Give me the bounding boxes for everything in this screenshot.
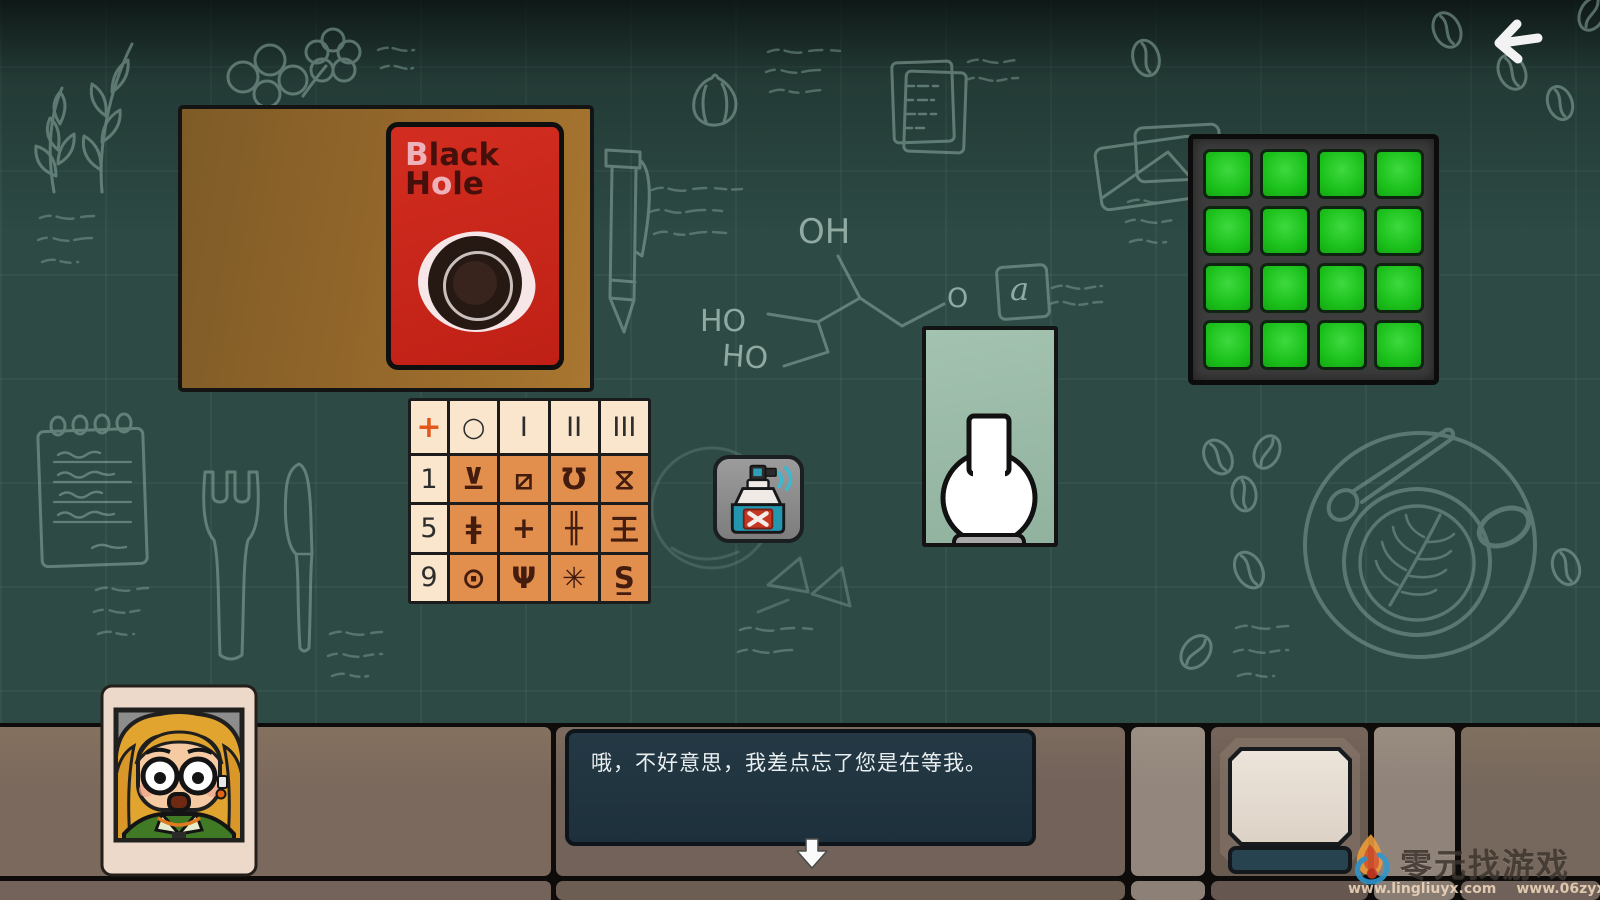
dialogue-box[interactable]: 哦，不好意思，我差点忘了您是在等我。 — [565, 729, 1036, 846]
green-grid-cell[interactable] — [1203, 320, 1253, 370]
green-grid-cell[interactable] — [1317, 263, 1367, 313]
green-grid-cell[interactable] — [1317, 149, 1367, 199]
symbol-cell[interactable]: ⧖ — [601, 456, 648, 502]
symbol-table-corner: + — [411, 401, 447, 453]
symbol-cell[interactable]: + — [500, 505, 547, 551]
down-arrow-icon — [797, 839, 827, 868]
green-grid-cell[interactable] — [1317, 320, 1367, 370]
watermark: 零元找游戏 www.lingliuyx.com www.06zyx.com — [1340, 824, 1598, 900]
green-grid-cell[interactable] — [1203, 206, 1253, 256]
symbol-cell[interactable]: ⧄ — [500, 456, 547, 502]
symbol-cell[interactable]: 王 — [601, 505, 648, 551]
black-hole-card-title: BlackHole — [405, 141, 499, 200]
watermark-logo-icon — [1346, 832, 1398, 888]
black-hole-core — [453, 261, 497, 305]
symbol-cell[interactable]: ⊙ — [450, 555, 497, 601]
vase-icon — [926, 330, 1054, 543]
green-grid-cell[interactable] — [1374, 206, 1424, 256]
symbol-cell[interactable]: ✳ — [551, 555, 598, 601]
symbol-cell[interactable]: S̲ — [601, 555, 648, 601]
back-arrow-icon — [1499, 24, 1538, 59]
portrait-inner — [116, 710, 242, 840]
spray-bottle-icon — [717, 459, 800, 539]
symbol-table-row-label: 9 — [411, 555, 447, 601]
character-portrait — [100, 684, 258, 877]
green-grid-cell[interactable] — [1260, 149, 1310, 199]
watermark-url-right: www.06zyx.com — [1516, 881, 1600, 897]
black-hole-card[interactable]: BlackHole — [386, 122, 564, 370]
inventory-card-face — [1232, 751, 1348, 842]
symbol-table-header: ○ — [450, 401, 497, 453]
bottom-panel — [1131, 727, 1205, 876]
green-grid-cell[interactable] — [1374, 149, 1424, 199]
green-grid-cell[interactable] — [1374, 263, 1424, 313]
spray-bottle-item[interactable] — [713, 455, 804, 543]
green-grid-cell[interactable] — [1260, 206, 1310, 256]
vase-display[interactable] — [922, 326, 1058, 547]
symbol-table-header: III — [601, 401, 648, 453]
bottom-strip — [0, 881, 551, 900]
symbol-cell[interactable]: Ψ — [500, 555, 547, 601]
symbol-table-header: II — [551, 401, 598, 453]
dialogue-continue-button[interactable] — [795, 838, 829, 870]
symbol-table-row-label: 5 — [411, 505, 447, 551]
green-grid-cell[interactable] — [1203, 263, 1253, 313]
green-grid-cell[interactable] — [1260, 263, 1310, 313]
symbol-table[interactable]: + ○ I II III 1 ⊻ ⧄ Ʊ ⧖ 5 ǂ + ╫ 王 9 ⊙ Ψ ✳… — [408, 398, 651, 604]
watermark-urls: www.lingliuyx.com www.06zyx.com — [1348, 881, 1598, 897]
watermark-url-left: www.lingliuyx.com — [1348, 881, 1496, 897]
bottom-strip — [556, 881, 1125, 900]
game-screen: OH HO HO O a BlackHole + ○ I II III 1 ⊻ … — [0, 0, 1600, 900]
symbol-table-row-label: 1 — [411, 456, 447, 502]
green-grid-cell[interactable] — [1317, 206, 1367, 256]
symbol-cell[interactable]: ╫ — [551, 505, 598, 551]
inventory-card-tray — [1228, 846, 1352, 874]
watermark-title: 零元找游戏 — [1400, 840, 1570, 886]
symbol-cell[interactable]: ⊻ — [450, 456, 497, 502]
dialogue-text: 哦，不好意思，我差点忘了您是在等我。 — [591, 747, 987, 777]
notice-board: BlackHole — [178, 105, 594, 392]
inventory-card[interactable] — [1228, 747, 1352, 846]
symbol-table-header: I — [500, 401, 547, 453]
bottom-panel — [0, 727, 551, 876]
symbol-cell[interactable]: Ʊ — [551, 456, 598, 502]
bottom-strip — [1131, 881, 1205, 900]
green-grid-panel[interactable] — [1188, 134, 1439, 385]
green-grid-cell[interactable] — [1374, 320, 1424, 370]
symbol-cell[interactable]: ǂ — [450, 505, 497, 551]
back-button[interactable] — [1482, 12, 1546, 66]
green-grid-cell[interactable] — [1203, 149, 1253, 199]
green-grid-cell[interactable] — [1260, 320, 1310, 370]
